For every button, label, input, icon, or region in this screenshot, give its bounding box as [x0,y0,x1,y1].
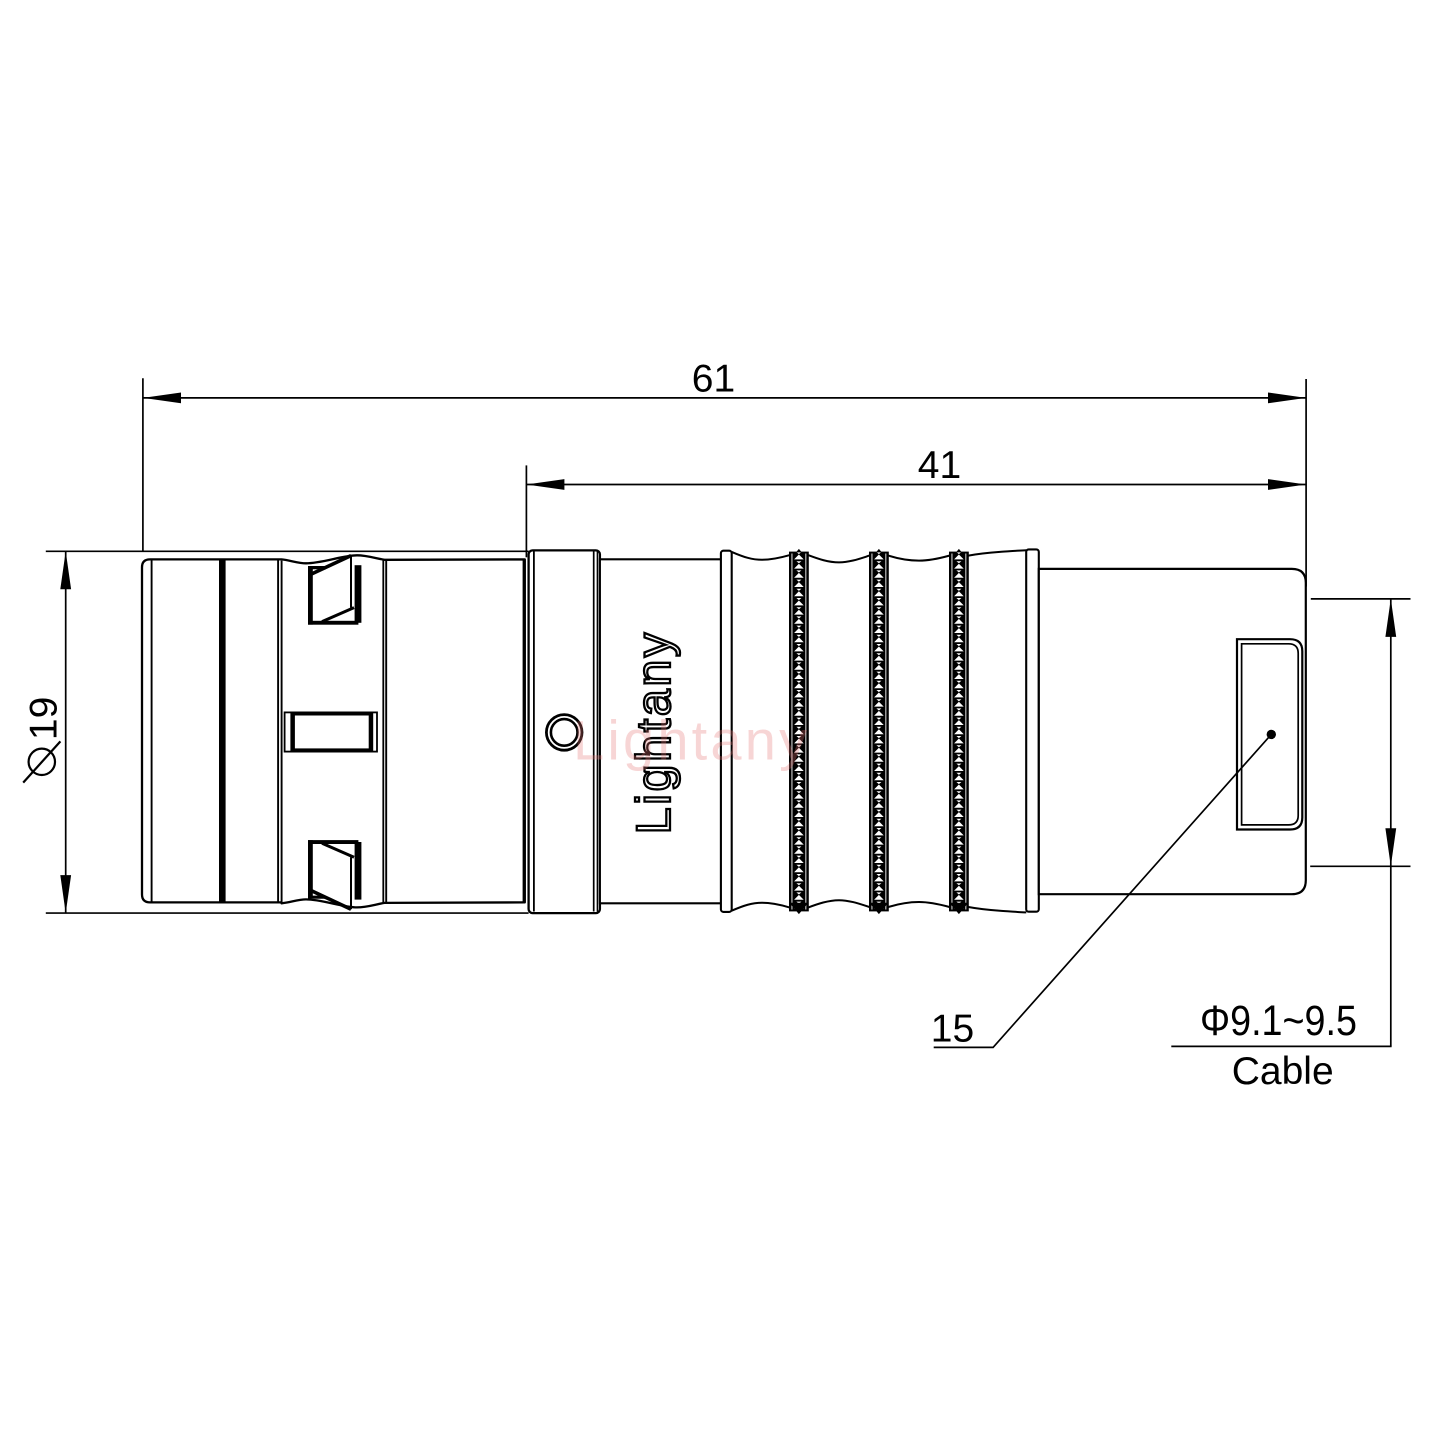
svg-text:19: 19 [23,697,66,740]
svg-text:15: 15 [931,1007,974,1050]
svg-text:61: 61 [692,357,735,400]
svg-text:Cable: Cable [1232,1050,1334,1093]
svg-text:41: 41 [918,444,961,487]
svg-text:Lightany: Lightany [573,709,810,772]
svg-text:Φ9.1~9.5: Φ9.1~9.5 [1200,997,1357,1045]
